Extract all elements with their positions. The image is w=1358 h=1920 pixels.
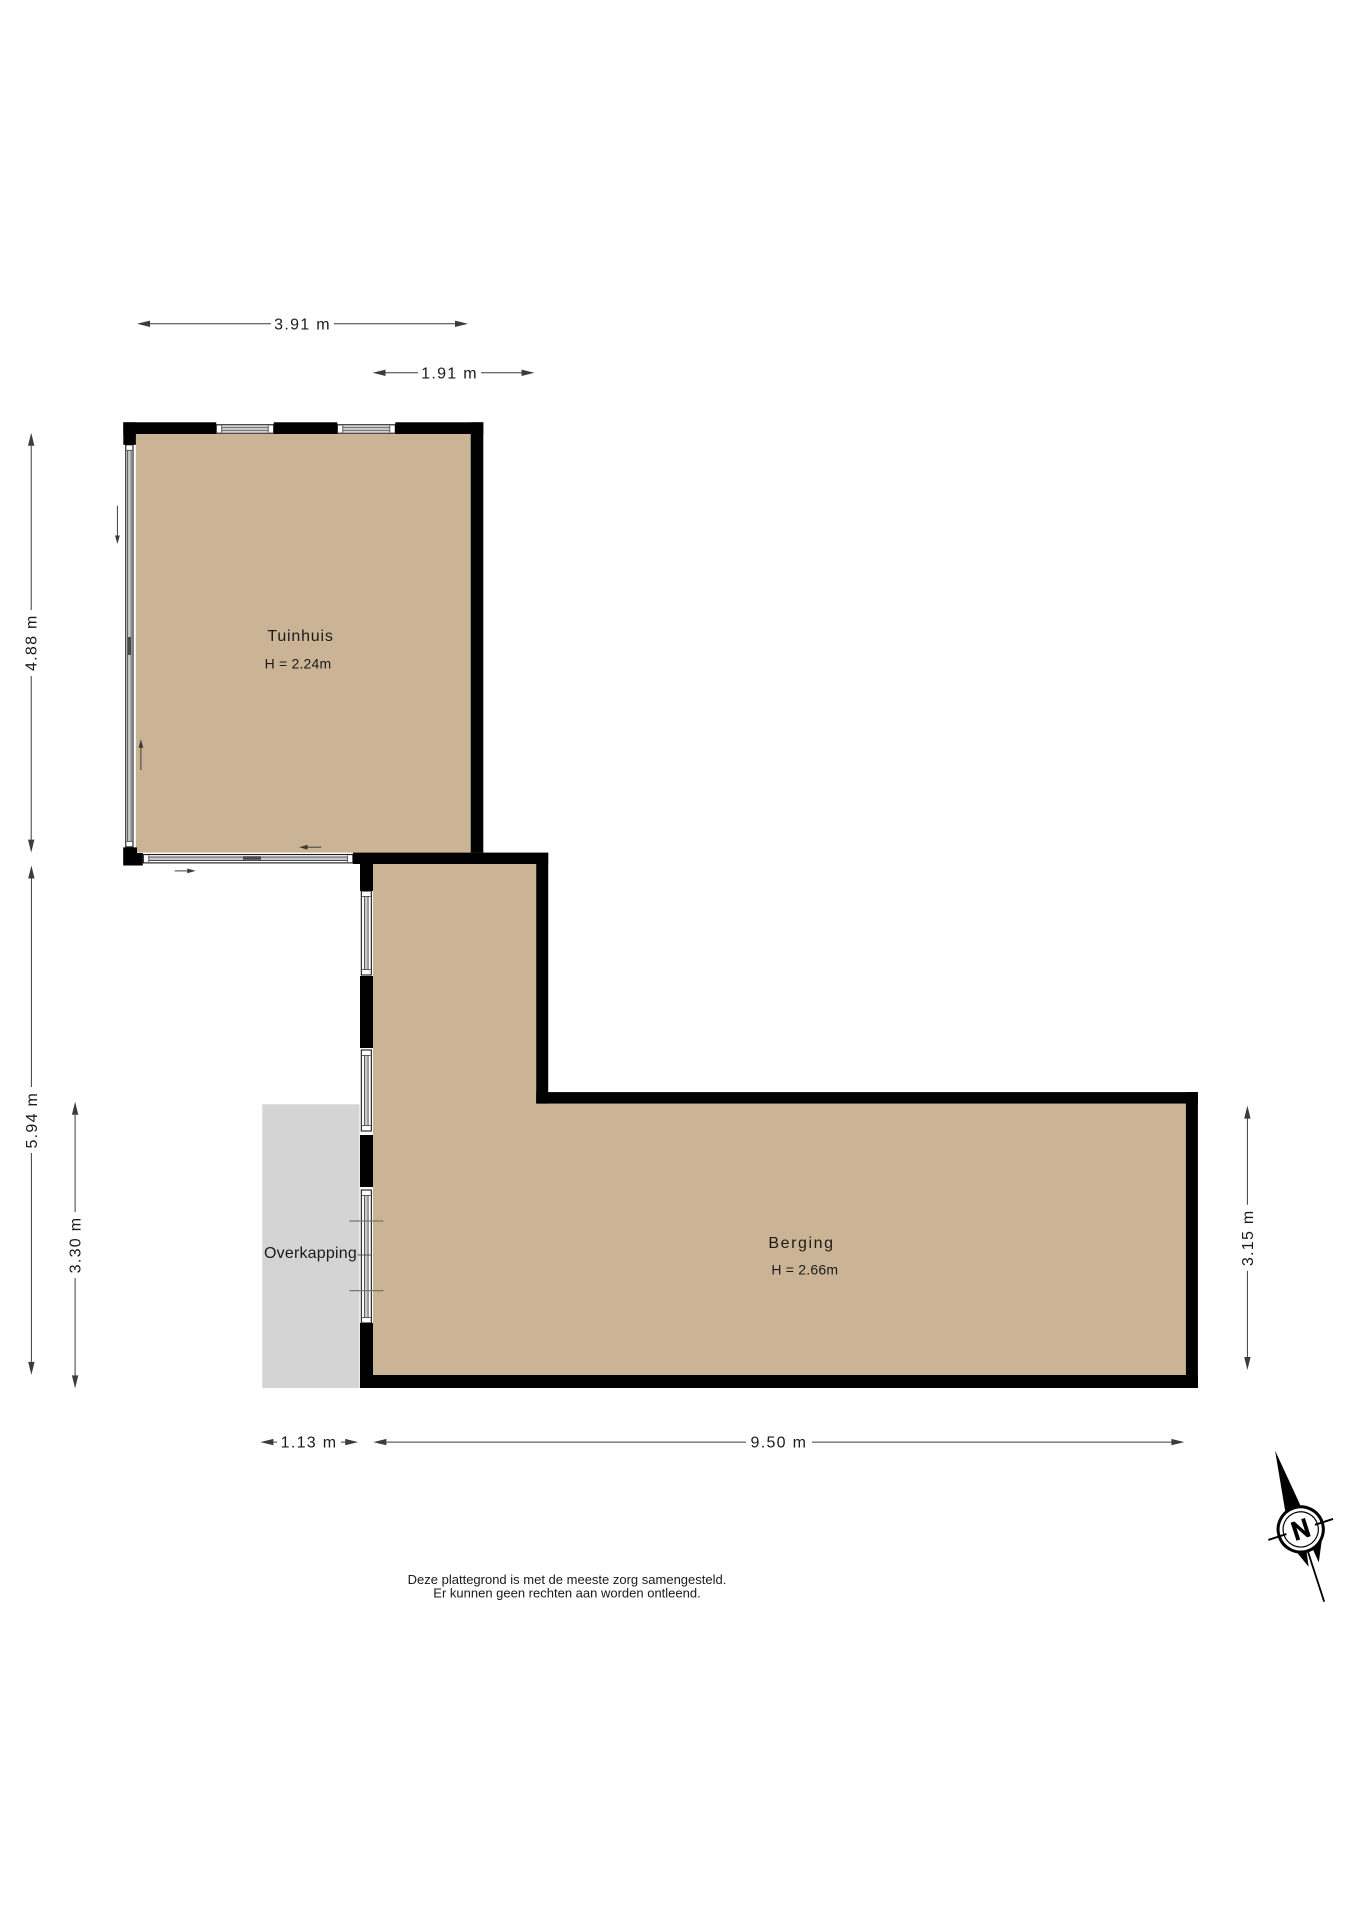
svg-text:1.91 m: 1.91 m bbox=[421, 365, 478, 382]
svg-text:H = 2.66m: H = 2.66m bbox=[771, 1262, 838, 1278]
svg-text:4.88 m: 4.88 m bbox=[24, 614, 41, 671]
svg-text:Berging: Berging bbox=[768, 1235, 834, 1252]
svg-text:3.30 m: 3.30 m bbox=[68, 1217, 85, 1274]
svg-text:3.91 m: 3.91 m bbox=[274, 316, 331, 333]
svg-text:H = 2.24m: H = 2.24m bbox=[265, 655, 332, 671]
svg-text:1.13 m: 1.13 m bbox=[281, 1435, 338, 1452]
svg-text:9.50 m: 9.50 m bbox=[751, 1435, 808, 1452]
svg-text:Er kunnen geen rechten aan wor: Er kunnen geen rechten aan worden ontlee… bbox=[433, 1585, 700, 1600]
svg-text:3.15 m: 3.15 m bbox=[1240, 1209, 1257, 1266]
svg-text:Overkapping: Overkapping bbox=[264, 1245, 357, 1262]
svg-text:Tuinhuis: Tuinhuis bbox=[267, 628, 333, 645]
svg-text:5.94 m: 5.94 m bbox=[24, 1092, 41, 1149]
